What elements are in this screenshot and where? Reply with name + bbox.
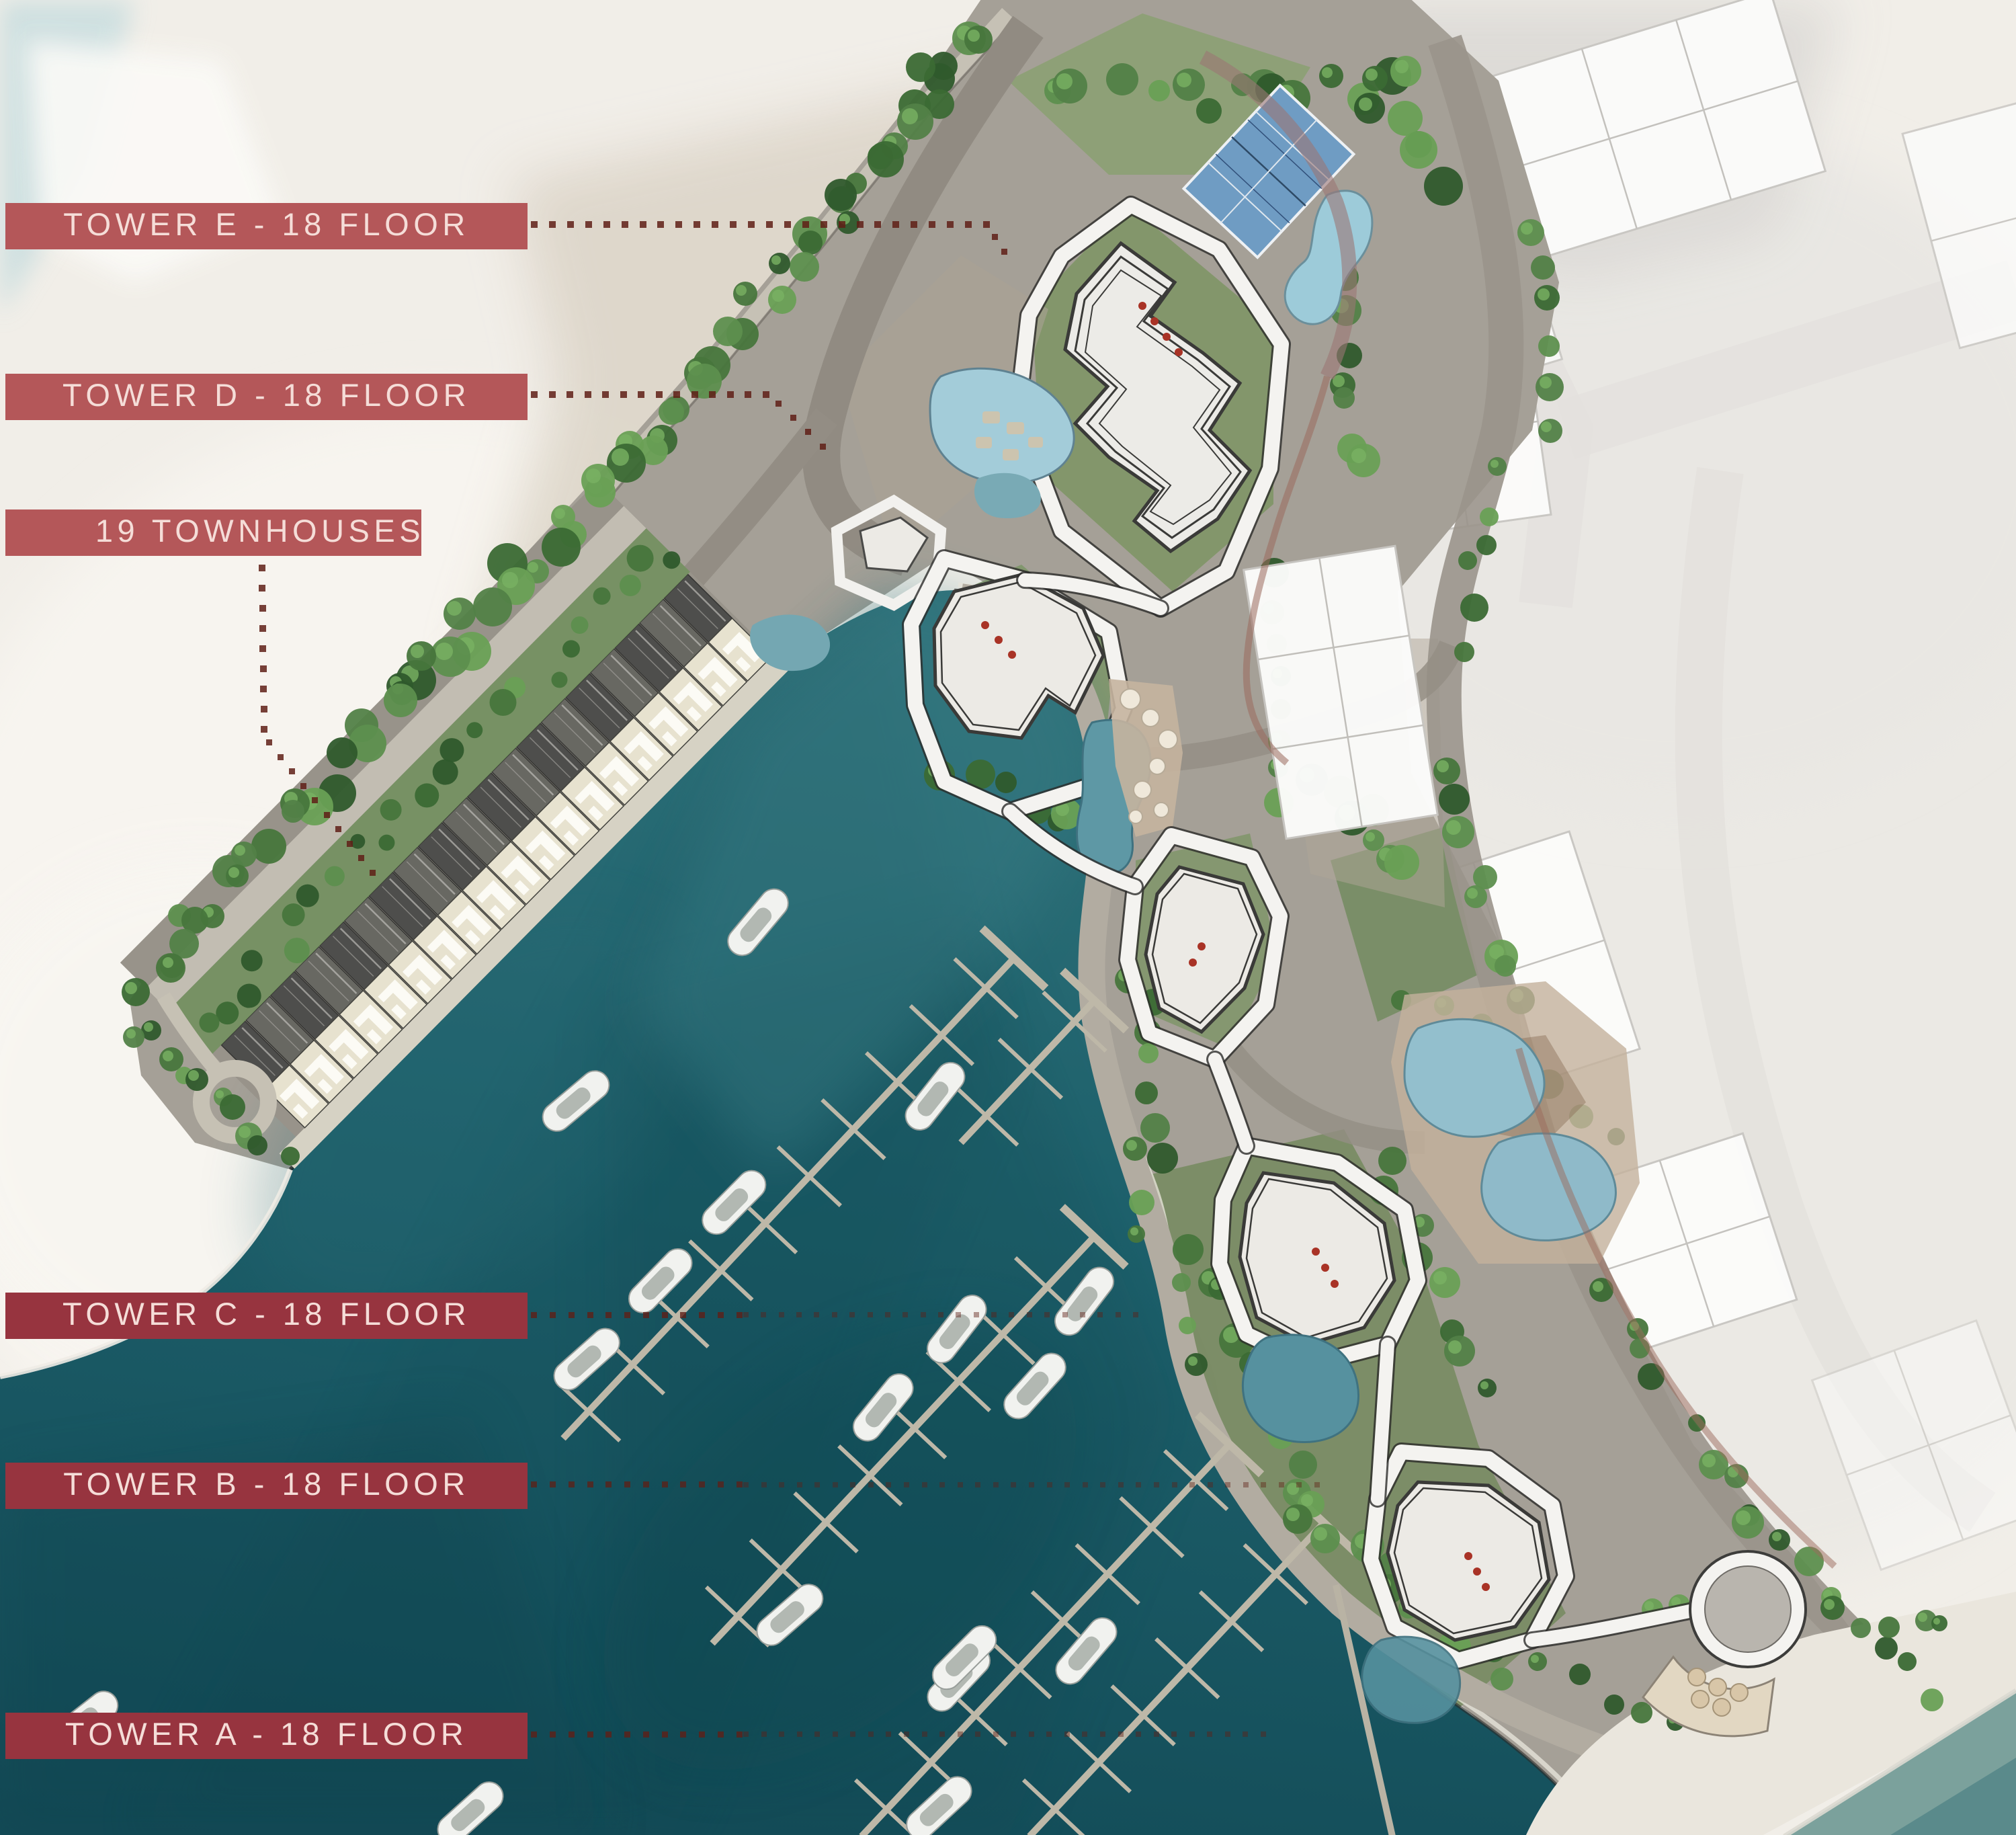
svg-text:19 TOWNHOUSES: 19 TOWNHOUSES <box>95 513 425 548</box>
svg-text:TOWER C - 18 FLOOR: TOWER C - 18 FLOOR <box>62 1296 470 1332</box>
svg-text:TOWER D - 18 FLOOR: TOWER D - 18 FLOOR <box>62 377 470 413</box>
svg-text:TOWER A - 18 FLOOR: TOWER A - 18 FLOOR <box>65 1716 468 1752</box>
svg-text:TOWER E - 18 FLOOR: TOWER E - 18 FLOOR <box>63 206 470 242</box>
svg-text:TOWER B - 18 FLOOR: TOWER B - 18 FLOOR <box>63 1466 470 1502</box>
